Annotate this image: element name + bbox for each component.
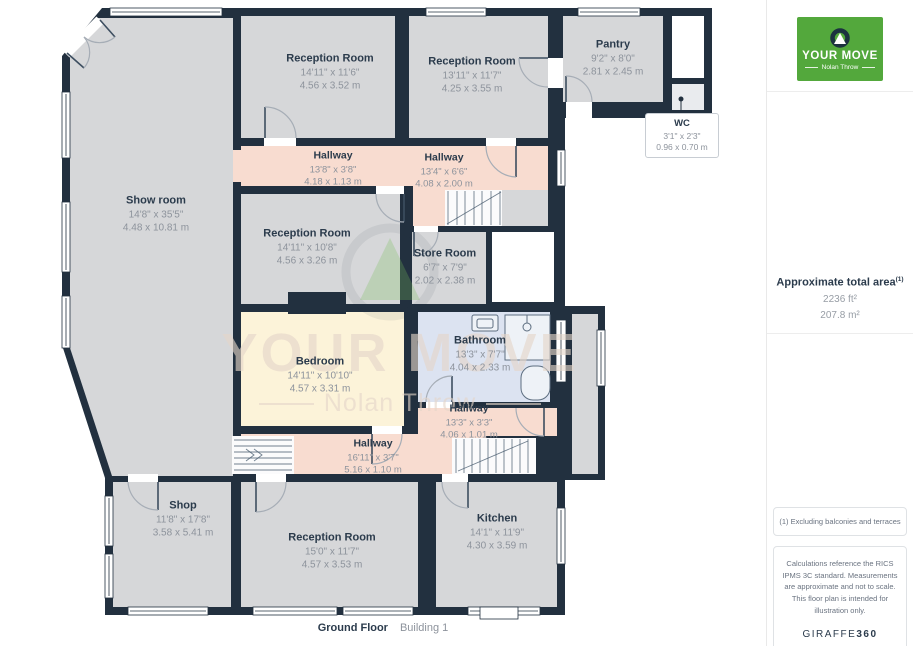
room-label-pantry: Pantry 9'2" x 8'0" 2.81 x 2.45 m	[583, 37, 644, 78]
room-label-reception-room-4: Reception Room 15'0" x 11'7" 4.57 x 3.53…	[288, 530, 375, 571]
room-label-hallway-4: Hallway 16'11" x 3'7" 5.16 x 1.10 m	[344, 437, 402, 476]
wc-callout: WC 3'1" x 2'3" 0.96 x 0.70 m	[645, 113, 719, 158]
room-label-shop: Shop 11'8" x 17'8" 3.58 x 5.41 m	[153, 498, 214, 539]
sidebar-divider-bottom	[767, 333, 913, 334]
floorplan-page: .wall{fill:#22303f}.room{fill:#d6d7d9}.h…	[0, 0, 913, 646]
room-label-reception-room-1: Reception Room 14'11" x 11'6" 4.56 x 3.5…	[286, 51, 373, 92]
room-label-bedroom: Bedroom 14'11" x 10'10" 4.57 x 3.31 m	[287, 354, 352, 395]
floor-label: Ground Floor	[318, 622, 388, 634]
room-label-reception-room-3: Reception Room 14'11" x 10'8" 4.56 x 3.2…	[263, 226, 350, 267]
footnote-card: (1) Excluding balconies and terraces	[773, 507, 907, 536]
logo-sub-text: Nolan Throw	[805, 64, 876, 71]
logo-mark-icon	[827, 28, 853, 48]
logo-rule-left	[805, 67, 818, 68]
disclaimer-text: Calculations reference the RICS IPMS 3C …	[781, 558, 899, 616]
room-label-show-room: Show room 14'8" x 35'5" 4.48 x 10.81 m	[123, 193, 189, 234]
logo-rule-right	[862, 67, 875, 68]
room-label-reception-room-2: Reception Room 13'11" x 11'7" 4.25 x 3.5…	[428, 54, 515, 95]
room-label-bathroom: Bathroom 13'3" x 7'7" 4.04 x 2.33 m	[450, 333, 511, 374]
room-label-store-room: Store Room 6'7" x 7'9" 2.02 x 2.38 m	[414, 246, 476, 287]
area-imperial: 2236 ft²	[767, 294, 913, 305]
room-label-kitchen: Kitchen 14'1" x 11'9" 4.30 x 3.59 m	[467, 511, 528, 552]
room-label-hallway-3: Hallway 13'3" x 3'3" 4.06 x 1.01 m	[440, 402, 498, 441]
area-summary: Approximate total area(1) 2236 ft² 207.8…	[767, 276, 913, 321]
footnote-text: (1) Excluding balconies and terraces	[779, 517, 900, 526]
room-label-hallway-1: Hallway 13'8" x 3'8" 4.18 x 1.13 m	[304, 149, 362, 188]
sidebar-divider-top	[767, 91, 913, 92]
floor-footer: Ground Floor Building 1	[0, 622, 766, 634]
wc-marker-dot	[679, 97, 684, 102]
giraffe-brand: GIRAFFE360	[781, 627, 899, 643]
logo-brand-text: YOUR MOVE	[802, 50, 878, 62]
floorplan-drawing: .wall{fill:#22303f}.room{fill:#d6d7d9}.h…	[0, 0, 766, 646]
room-label-hallway-2: Hallway 13'4" x 6'6" 4.08 x 2.00 m	[415, 151, 473, 190]
sidebar: YOUR MOVE Nolan Throw Approximate total …	[766, 0, 913, 646]
area-title: Approximate total area(1)	[767, 276, 913, 289]
building-label: Building 1	[400, 622, 448, 634]
agency-logo: YOUR MOVE Nolan Throw	[797, 17, 883, 81]
disclaimer-card: Calculations reference the RICS IPMS 3C …	[773, 546, 907, 646]
floorplan-canvas: .wall{fill:#22303f}.room{fill:#d6d7d9}.h…	[0, 0, 766, 646]
area-metric: 207.8 m²	[767, 310, 913, 321]
